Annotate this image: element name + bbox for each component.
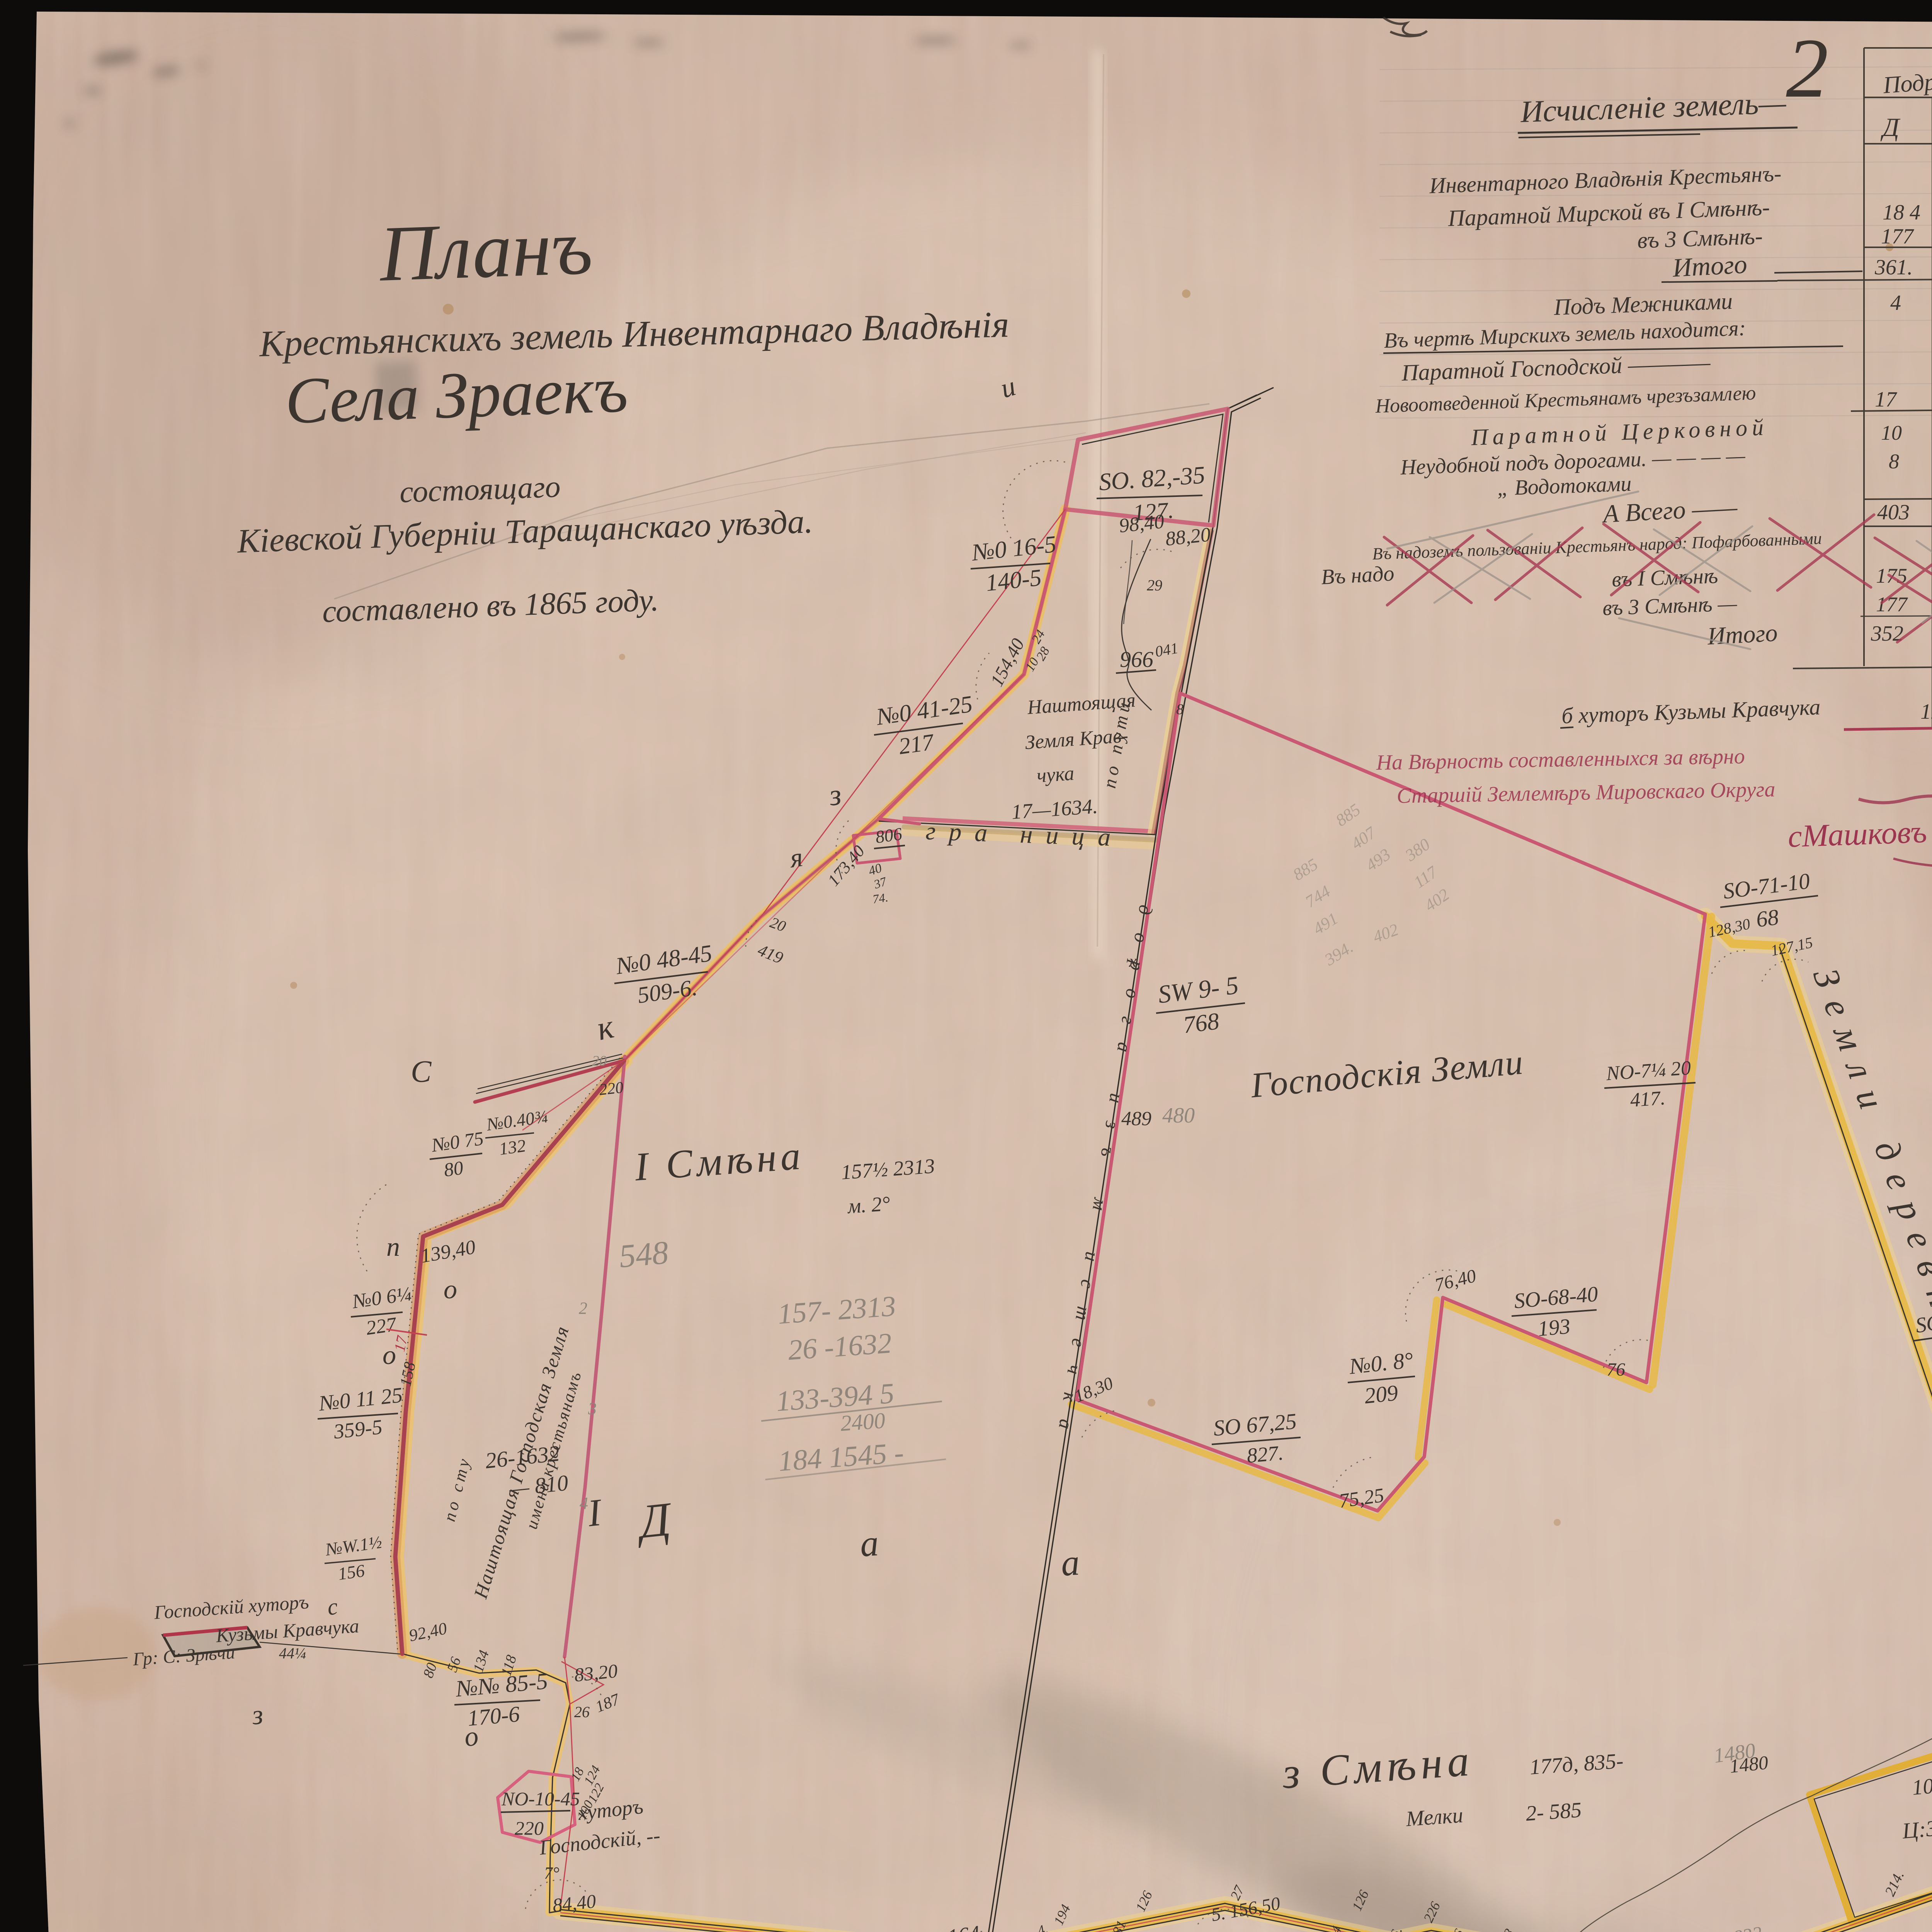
svg-text:20: 20 <box>592 1053 607 1069</box>
svg-text:а: а <box>859 1522 880 1565</box>
svg-text:8: 8 <box>1176 701 1184 718</box>
svg-text:768: 768 <box>1182 1008 1221 1039</box>
svg-text:806: 806 <box>874 824 903 847</box>
svg-text:177: 177 <box>1881 224 1914 248</box>
svg-text:29: 29 <box>1147 577 1162 594</box>
svg-text:Планъ: Планъ <box>378 203 594 298</box>
svg-text:84,40: 84,40 <box>551 1890 597 1916</box>
svg-text:4: 4 <box>580 1494 588 1513</box>
svg-text:88,20: 88,20 <box>1164 524 1211 550</box>
svg-text:Итого: Итого <box>1706 619 1778 650</box>
svg-text:2- 585: 2- 585 <box>1525 1798 1583 1826</box>
svg-text:217: 217 <box>897 729 936 759</box>
svg-text:м. 2°: м. 2° <box>846 1192 891 1218</box>
svg-text:18 4: 18 4 <box>1883 201 1920 224</box>
svg-text:489: 489 <box>1121 1108 1151 1130</box>
svg-text:26: 26 <box>574 1703 590 1721</box>
svg-text:220: 220 <box>598 1079 624 1099</box>
svg-text:193: 193 <box>1537 1314 1571 1341</box>
svg-text:827.: 827. <box>1246 1441 1284 1467</box>
svg-text:10: 10 <box>1881 421 1902 444</box>
svg-text:3: 3 <box>588 1399 597 1418</box>
svg-text:170-6: 170-6 <box>466 1701 520 1731</box>
svg-text:17: 17 <box>1875 388 1897 412</box>
svg-text:NO-10-45: NO-10-45 <box>501 1788 580 1810</box>
svg-text:въ 3 Смѣнѣ-: въ 3 Смѣнѣ- <box>1637 223 1763 253</box>
svg-text:548: 548 <box>617 1234 670 1275</box>
svg-text:80: 80 <box>442 1156 464 1180</box>
svg-text:44¼: 44¼ <box>279 1645 306 1662</box>
svg-text:98,40: 98,40 <box>1118 510 1165 537</box>
svg-text:68: 68 <box>1755 904 1780 932</box>
svg-text:403: 403 <box>1877 500 1910 524</box>
svg-text:7°: 7° <box>544 1864 560 1883</box>
svg-text:361.: 361. <box>1874 255 1913 279</box>
svg-text:„ Водотоками: „ Водотоками <box>1497 472 1632 500</box>
svg-text:966: 966 <box>1120 647 1153 672</box>
svg-text:Въ надо: Въ надо <box>1320 561 1395 589</box>
svg-text:83,20: 83,20 <box>573 1660 619 1685</box>
svg-text:Мелки: Мелки <box>1405 1803 1464 1831</box>
svg-text:Ц:3:: Ц:3: <box>1901 1815 1932 1844</box>
svg-text:Села Зраекъ: Села Зраекъ <box>284 353 629 437</box>
svg-text:1230: 1230 <box>1920 700 1932 724</box>
svg-text:209: 209 <box>1363 1380 1399 1408</box>
svg-text:въ 3 Смѣнѣ —: въ 3 Смѣнѣ — <box>1602 592 1738 620</box>
svg-text:76: 76 <box>1607 1359 1625 1380</box>
svg-text:132: 132 <box>498 1136 527 1159</box>
svg-text:2: 2 <box>1786 21 1828 115</box>
svg-text:74.: 74. <box>872 890 889 906</box>
svg-text:Д: Д <box>1880 112 1901 142</box>
svg-text:2: 2 <box>579 1299 587 1318</box>
svg-text:состоящаго: состоящаго <box>399 470 561 509</box>
svg-text:480: 480 <box>1162 1104 1195 1128</box>
svg-text:417.: 417. <box>1629 1087 1666 1111</box>
svg-text:8: 8 <box>1889 450 1899 473</box>
svg-text:4: 4 <box>1890 291 1901 315</box>
svg-text:чука: чука <box>1036 762 1075 787</box>
svg-text:о: о <box>444 1275 457 1304</box>
svg-text:п: п <box>386 1232 400 1262</box>
svg-text:Итого: Итого <box>1672 249 1748 282</box>
svg-text:156: 156 <box>337 1561 366 1584</box>
svg-text:С: С <box>411 1055 432 1089</box>
svg-text:а: а <box>1060 1541 1081 1584</box>
svg-text:220: 220 <box>515 1817 544 1839</box>
svg-text:сМашковъ Ир.: сМашковъ Ир. <box>1787 812 1932 854</box>
